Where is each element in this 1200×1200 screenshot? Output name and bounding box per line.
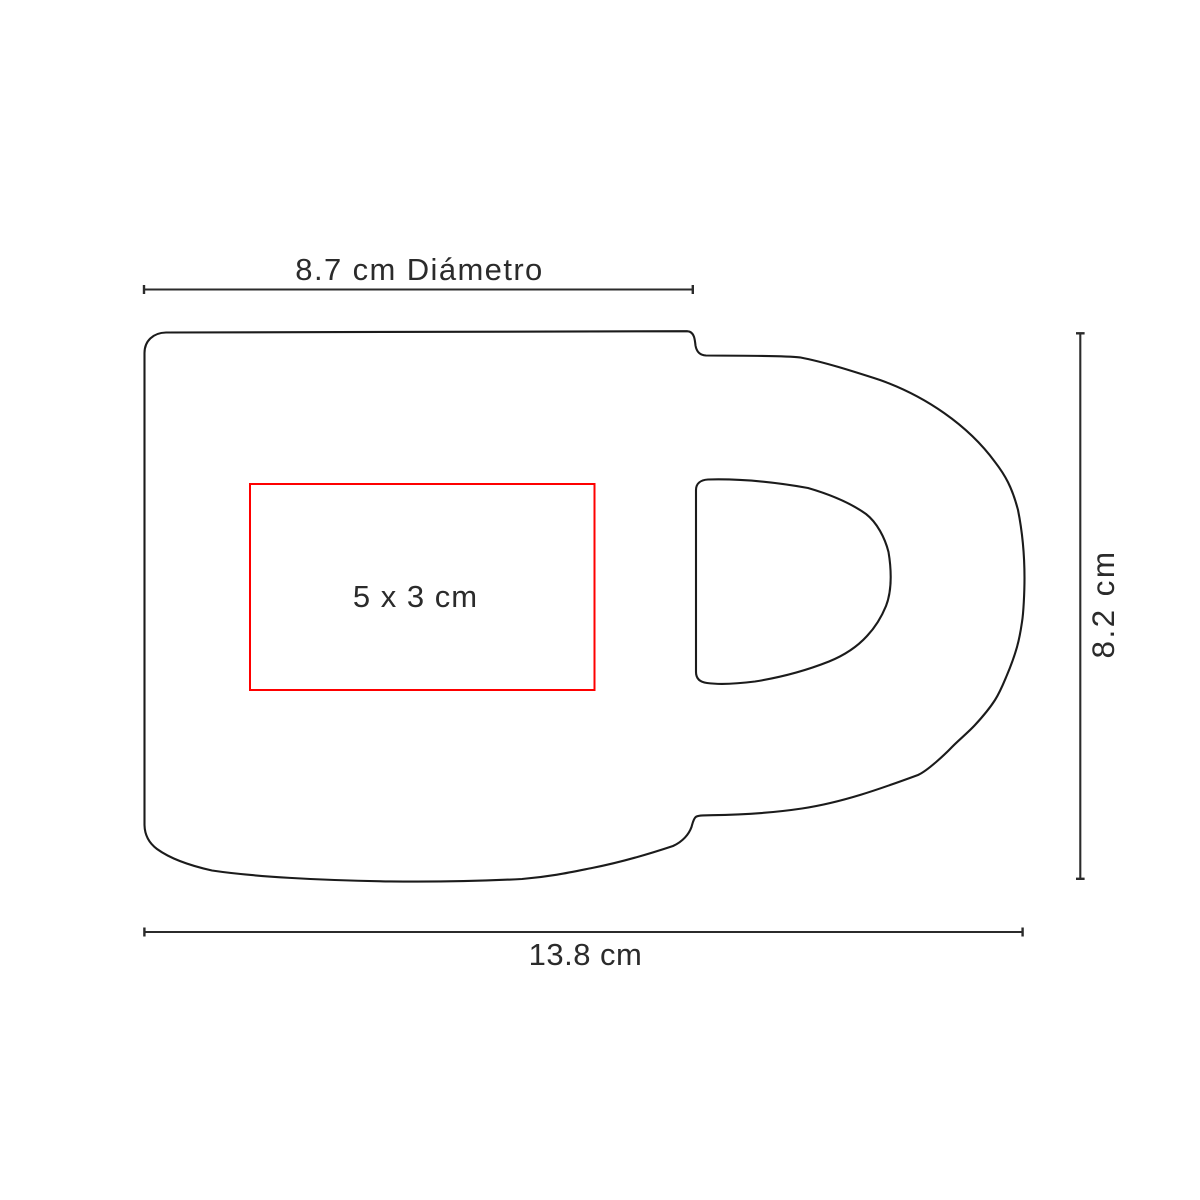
svg-text:5 x 3 cm: 5 x 3 cm bbox=[353, 579, 478, 614]
svg-text:8.7 cm Diámetro: 8.7 cm Diámetro bbox=[295, 252, 543, 287]
svg-text:8.2 cm: 8.2 cm bbox=[1085, 550, 1121, 659]
svg-text:13.8 cm: 13.8 cm bbox=[529, 937, 643, 972]
